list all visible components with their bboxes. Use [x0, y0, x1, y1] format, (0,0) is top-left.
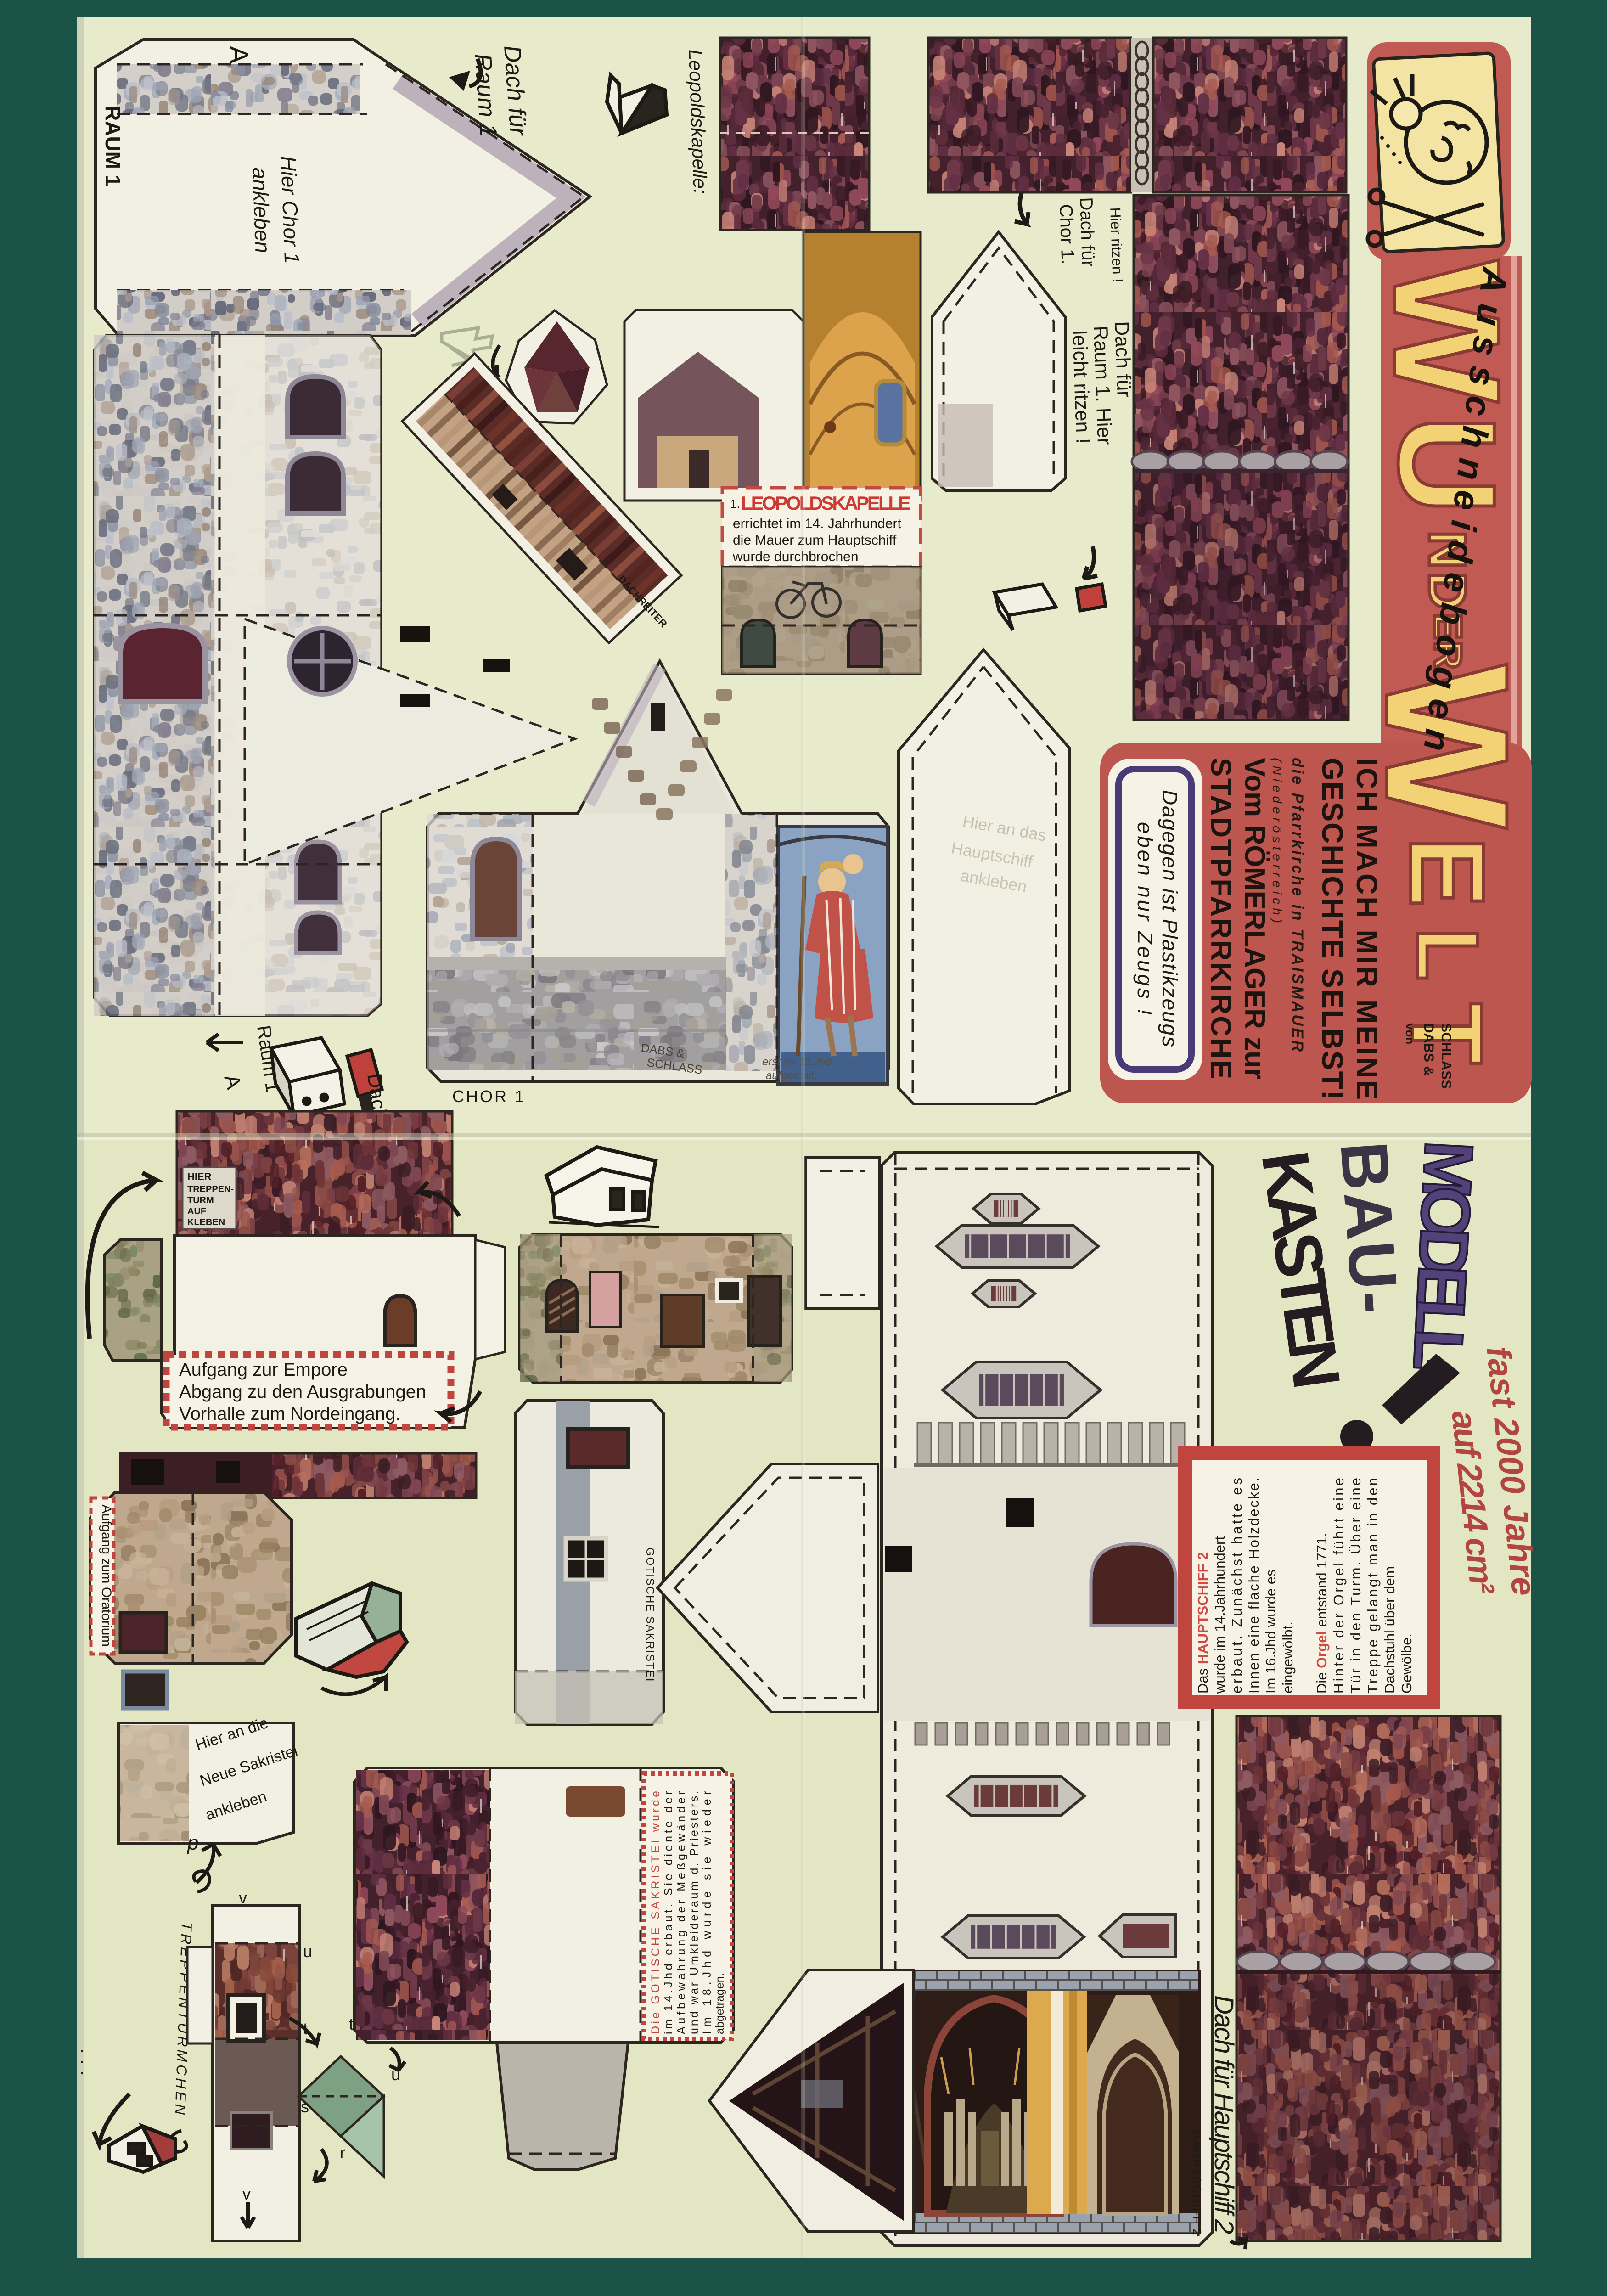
svg-text:Vom RÖMERLAGER zur: Vom RÖMERLAGER zur: [1239, 758, 1270, 1079]
svg-text:GOTISCHE SAKRISTEI: GOTISCHE SAKRISTEI: [644, 1548, 656, 1682]
svg-text:Das HAUPTSCHIFF 2: Das HAUPTSCHIFF 2: [1195, 1552, 1211, 1694]
svg-text:aufgemalt.: aufgemalt.: [766, 1069, 817, 1082]
svg-text:LEOPOLDSKAPELLE: LEOPOLDSKAPELLE: [741, 492, 911, 514]
svg-text:u: u: [303, 1942, 312, 1961]
svg-text:die Pfarrkirche in TRAISMAUER: die Pfarrkirche in TRAISMAUER: [1289, 758, 1306, 1052]
svg-text:RAUM 1: RAUM 1: [101, 106, 125, 186]
svg-text:Treppe gelangt man in den: Treppe gelangt man in den: [1365, 1478, 1381, 1694]
svg-text:Tür in den Turm. Über eine: Tür in den Turm. Über eine: [1348, 1478, 1364, 1694]
svg-text:p: p: [186, 1832, 198, 1854]
svg-text:leicht ritzen !: leicht ritzen !: [1068, 330, 1095, 445]
svg-text:s: s: [301, 2097, 309, 2116]
svg-text:von: von: [1403, 1023, 1417, 1044]
svg-text:Chor 1.: Chor 1.: [1056, 204, 1078, 265]
svg-text:Abgang zu den Ausgrabungen: Abgang zu den Ausgrabungen: [179, 1382, 426, 1402]
svg-text:Im 16.Jhd wurde es: Im 16.Jhd wurde es: [1263, 1569, 1279, 1694]
svg-text:1.: 1.: [730, 497, 740, 511]
svg-text:TURM: TURM: [187, 1195, 214, 1205]
svg-text:die Mauer zum Hauptschiff: die Mauer zum Hauptschiff: [733, 533, 897, 548]
svg-text:im 14.Jhd erbaut. Sie diente d: im 14.Jhd erbaut. Sie diente der: [662, 1791, 675, 2034]
svg-text:wurde im 14.Jahrhundert: wurde im 14.Jahrhundert: [1212, 1536, 1228, 1694]
svg-text:L: L: [1399, 928, 1496, 981]
svg-text:Hier Chor 1: Hier Chor 1: [276, 156, 304, 264]
svg-text:HAUPTSCHIFF 2: HAUPTSCHIFF 2: [1190, 2131, 1204, 2236]
svg-text:CHOR 1: CHOR 1: [452, 1087, 526, 1106]
svg-text:MODELL-: MODELL-: [1399, 1139, 1488, 1384]
svg-text:eingewölbt.: eingewölbt.: [1280, 1621, 1296, 1694]
svg-text:. . .: . . .: [76, 2048, 99, 2076]
svg-text:Hier ritzen !: Hier ritzen !: [1107, 207, 1126, 283]
svg-text:E: E: [1388, 837, 1506, 907]
svg-text:GESCHICHTE SELBST!: GESCHICHTE SELBST!: [1316, 758, 1349, 1100]
svg-text:errichtet im 14. Jahrhundert: errichtet im 14. Jahrhundert: [733, 516, 902, 531]
svg-text:STADTPFARRKIRCHE: STADTPFARRKIRCHE: [1205, 758, 1236, 1079]
svg-text:Aufgang zum Oratorium: Aufgang zum Oratorium: [99, 1504, 114, 1647]
svg-text:abgetragen.: abgetragen.: [714, 1973, 726, 2034]
svg-text:r: r: [340, 2143, 345, 2162]
svg-text:A: A: [224, 46, 253, 64]
svg-text:wurde durchbrochen: wurde durchbrochen: [732, 549, 859, 564]
svg-text:Aufgang zur Empore: Aufgang zur Empore: [179, 1360, 348, 1380]
svg-text:TREPPEN-: TREPPEN-: [187, 1184, 234, 1194]
svg-text:KLEBEN: KLEBEN: [187, 1217, 225, 1227]
svg-text:DABS &: DABS &: [1421, 1023, 1436, 1076]
svg-text:v: v: [242, 2184, 251, 2203]
svg-text:erst im 13.Jhd: erst im 13.Jhd: [762, 1056, 832, 1068]
svg-text:Vorhalle zum Nordeingang.: Vorhalle zum Nordeingang.: [179, 1404, 401, 1424]
svg-text:AUF: AUF: [187, 1206, 206, 1216]
svg-text:HIER: HIER: [187, 1171, 212, 1182]
svg-text:Dach für: Dach für: [1076, 197, 1098, 267]
svg-text:SCHLASS: SCHLASS: [1438, 1023, 1454, 1089]
svg-text:Gewölbe.: Gewölbe.: [1399, 1633, 1415, 1694]
svg-text:Die GOTISCHE SAKRISTEI wurde: Die GOTISCHE SAKRISTEI wurde: [649, 1791, 662, 2034]
svg-text:erbaut. Zunächst hatte es: erbaut. Zunächst hatte es: [1229, 1478, 1245, 1694]
svg-text:t: t: [349, 2015, 354, 2033]
svg-text:Dach für Hauptschiff 2: Dach für Hauptschiff 2: [1209, 1995, 1239, 2234]
svg-text:Innen eine flache Holzdecke.: Innen eine flache Holzdecke.: [1246, 1478, 1262, 1694]
svg-text:Dachstuhl über dem: Dachstuhl über dem: [1382, 1566, 1398, 1694]
svg-text:und war Umkleideraum d. Priest: und war Umkleideraum d. Priesters.: [688, 1791, 701, 2034]
svg-text:Die Orgel entstand 1771.: Die Orgel entstand 1771.: [1314, 1533, 1330, 1694]
svg-text:ankleben: ankleben: [248, 167, 275, 253]
svg-text:v: v: [239, 1888, 247, 1907]
svg-text:Dagegen ist Plastikzeugs: Dagegen ist Plastikzeugs: [1158, 790, 1182, 1047]
svg-text:Aufbewahrung der Meßgewänder: Aufbewahrung der Meßgewänder: [675, 1791, 688, 2034]
